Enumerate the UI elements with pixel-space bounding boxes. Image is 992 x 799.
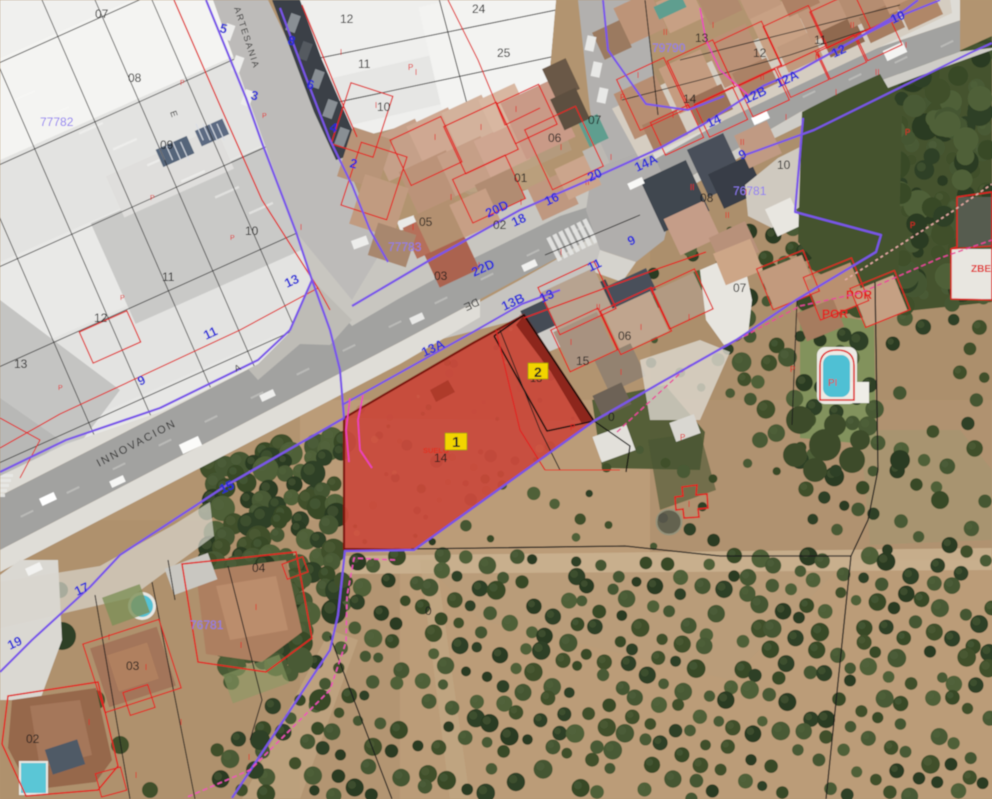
svg-text:13: 13	[695, 31, 709, 45]
svg-text:P: P	[620, 93, 625, 102]
svg-text:11: 11	[814, 33, 827, 47]
svg-text:I: I	[300, 223, 302, 232]
svg-text:I: I	[688, 313, 690, 322]
svg-text:II: II	[725, 211, 729, 220]
svg-text:I: I	[248, 753, 250, 762]
svg-text:P: P	[150, 195, 155, 202]
svg-text:PI: PI	[828, 378, 837, 389]
svg-text:25: 25	[497, 46, 511, 60]
svg-text:P: P	[680, 433, 685, 442]
svg-text:P: P	[905, 128, 910, 137]
svg-text:2: 2	[534, 364, 542, 380]
svg-text:I: I	[88, 718, 90, 727]
svg-text:P: P	[58, 385, 63, 392]
svg-text:II: II	[596, 303, 600, 312]
svg-text:P: P	[790, 365, 795, 374]
svg-text:I: I	[145, 663, 147, 672]
svg-text:07: 07	[733, 281, 747, 295]
svg-text:I: I	[415, 68, 417, 77]
svg-text:II: II	[690, 183, 694, 192]
svg-text:I: I	[688, 500, 690, 509]
svg-text:02: 02	[493, 218, 507, 232]
svg-text:14: 14	[683, 92, 697, 106]
svg-text:I: I	[240, 641, 242, 650]
svg-text:I: I	[640, 323, 642, 332]
svg-text:07: 07	[588, 113, 602, 127]
svg-text:II: II	[850, 21, 854, 30]
svg-text:10: 10	[245, 224, 259, 238]
svg-text:I: I	[135, 771, 137, 780]
svg-text:I: I	[672, 111, 674, 120]
svg-text:P: P	[262, 113, 267, 120]
svg-text:0: 0	[608, 410, 615, 424]
svg-text:03: 03	[126, 659, 140, 673]
svg-text:II: II	[760, 73, 764, 82]
svg-text:06: 06	[618, 329, 632, 343]
svg-text:I: I	[835, 88, 837, 97]
svg-text:1: 1	[452, 434, 460, 451]
svg-text:I: I	[108, 633, 110, 642]
svg-text:12: 12	[94, 311, 108, 325]
svg-text:I: I	[570, 338, 572, 347]
svg-text:09: 09	[160, 138, 174, 152]
svg-text:04: 04	[252, 561, 266, 575]
svg-text:11: 11	[162, 270, 175, 284]
svg-text:I: I	[905, 41, 907, 50]
svg-text:ZBE: ZBE	[971, 264, 991, 275]
svg-text:II: II	[663, 28, 667, 37]
svg-text:24: 24	[472, 2, 486, 16]
svg-text:P: P	[570, 423, 575, 432]
svg-text:0: 0	[425, 604, 432, 618]
svg-text:I: I	[560, 248, 562, 257]
svg-text:I: I	[520, 198, 522, 207]
svg-text:07: 07	[95, 7, 109, 21]
svg-text:I: I	[180, 718, 182, 727]
svg-text:01: 01	[514, 171, 528, 185]
svg-text:I: I	[515, 105, 517, 114]
svg-text:77783: 77783	[388, 240, 422, 254]
svg-text:I: I	[637, 71, 639, 80]
svg-text:06: 06	[548, 131, 562, 145]
svg-text:08: 08	[700, 191, 714, 205]
svg-text:I: I	[620, 368, 622, 377]
svg-text:77782: 77782	[40, 115, 74, 129]
svg-text:P: P	[180, 80, 185, 87]
svg-text:05: 05	[419, 215, 433, 229]
svg-text:08: 08	[128, 71, 142, 85]
svg-text:I: I	[412, 223, 414, 232]
svg-text:P: P	[230, 235, 235, 242]
svg-text:79790: 79790	[652, 41, 686, 55]
svg-text:POR: POR	[822, 307, 848, 321]
svg-text:I: I	[610, 153, 612, 162]
svg-text:76781: 76781	[733, 184, 767, 198]
svg-text:P: P	[910, 221, 915, 230]
svg-text:10: 10	[777, 158, 791, 172]
svg-text:13: 13	[14, 357, 28, 371]
svg-text:76781: 76781	[190, 618, 224, 632]
svg-text:15: 15	[576, 354, 590, 368]
svg-text:11: 11	[358, 57, 371, 71]
svg-text:I: I	[340, 48, 342, 57]
svg-text:I: I	[255, 603, 257, 612]
svg-text:12: 12	[340, 12, 354, 26]
svg-text:P: P	[408, 63, 413, 72]
svg-text:I: I	[450, 193, 452, 202]
svg-text:12: 12	[753, 46, 767, 60]
svg-text:I: I	[785, 113, 787, 122]
svg-text:I: I	[712, 21, 714, 30]
svg-text:P: P	[120, 295, 125, 302]
svg-text:I: I	[480, 123, 482, 132]
svg-text:II: II	[875, 68, 879, 77]
svg-text:02: 02	[26, 732, 40, 746]
svg-text:03: 03	[434, 269, 448, 283]
svg-text:10: 10	[377, 100, 391, 114]
svg-text:I: I	[434, 133, 436, 142]
